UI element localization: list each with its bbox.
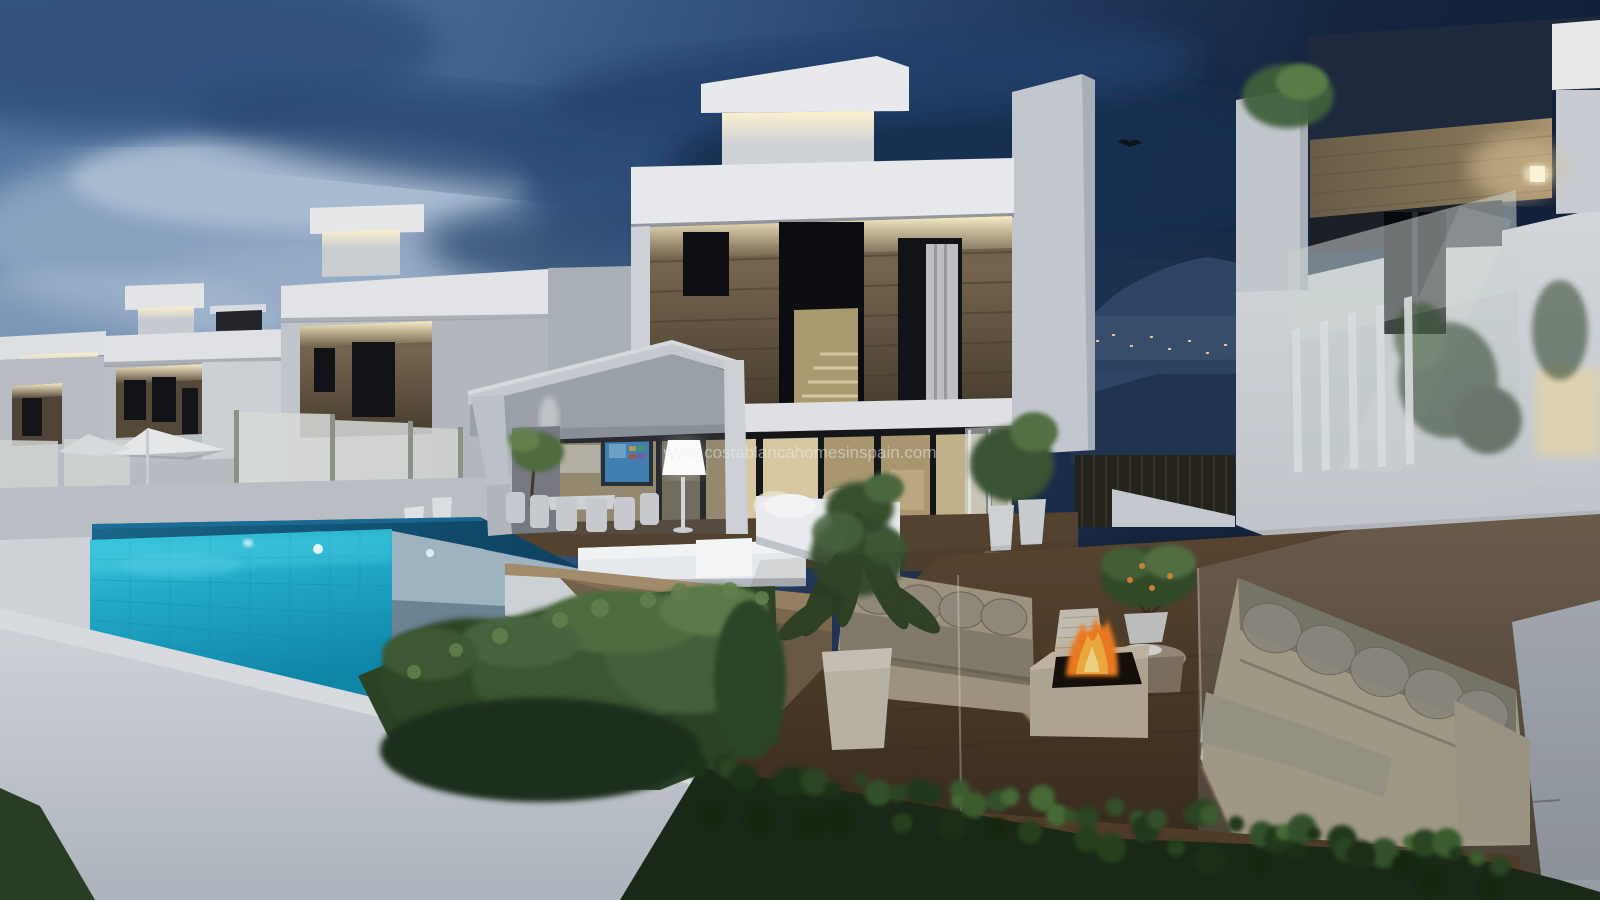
svg-text:www.costablancahomesinspain.co: www.costablancahomesinspain.com <box>662 443 936 462</box>
